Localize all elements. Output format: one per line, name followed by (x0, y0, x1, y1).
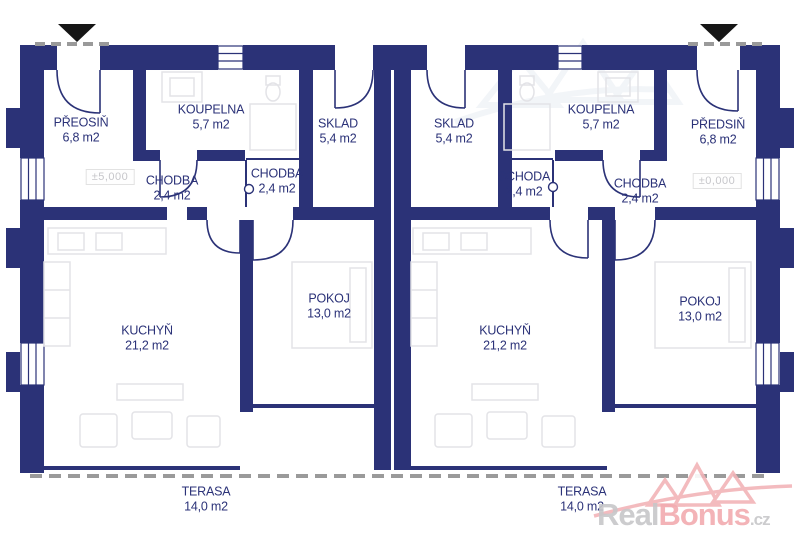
room-label-chodba-right-main: CHODBA2,4 m2 (614, 176, 666, 206)
room-name: POKOJ (308, 291, 349, 305)
elevation-marker-right: ±0,000 (693, 173, 742, 189)
outer-walls (6, 45, 794, 473)
entrance-arrow-icon-left (58, 24, 96, 42)
room-area: 13,0 m2 (678, 309, 722, 323)
room-area: 5,4 m2 (435, 131, 472, 145)
sofa-icon (435, 414, 472, 447)
room-area: 2,4 m2 (621, 191, 658, 205)
room-label-koupelna-left: KOUPELNA5,7 m2 (178, 102, 244, 132)
room-area: 14,0 m2 (184, 499, 228, 513)
room-name: CHODBA (614, 176, 666, 190)
sofa-icon (132, 412, 172, 439)
room-name: SKLAD (434, 116, 474, 130)
room-name: PŘEOSIŇ (54, 115, 109, 129)
room-name: KUCHYŇ (479, 323, 531, 337)
room-name: KOUPELNA (178, 102, 244, 116)
shower-icon (250, 104, 296, 150)
sofa-icon (80, 414, 117, 447)
room-label-terasa-left: TERASA14,0 m2 (182, 484, 231, 514)
room-label-predsin-left: PŘEOSIŇ6,8 m2 (54, 115, 109, 145)
room-area: 5,4 m2 (319, 131, 356, 145)
room-name: KUCHYŇ (121, 323, 173, 337)
floor-plan-drawing (0, 0, 800, 533)
entrance-arrows (58, 24, 738, 42)
room-label-kuchyn-left: KUCHYŇ21,2 m2 (121, 323, 173, 353)
room-area: 2,4 m2 (505, 184, 542, 198)
room-label-koupelna-right: KOUPELNA5,7 m2 (568, 102, 634, 132)
room-name: CHODBA (146, 173, 198, 187)
watermark-real: Real (597, 497, 658, 532)
room-label-chodba-left-small: CHODBA2,4 m2 (251, 166, 303, 196)
room-name: SCHODA (498, 169, 550, 183)
floor-plan: PŘEOSIŇ6,8 m2 KOUPELNA5,7 m2 SKLAD5,4 m2… (0, 0, 800, 533)
room-label-schoda-right: SCHODA2,4 m2 (498, 169, 550, 199)
watermark-cz: .cz (750, 510, 770, 529)
table-icon (472, 384, 538, 400)
room-label-kuchyn-right: KUCHYŇ21,2 m2 (479, 323, 531, 353)
room-label-sklad-right: SKLAD5,4 m2 (434, 116, 474, 146)
room-label-sklad-left: SKLAD5,4 m2 (318, 116, 358, 146)
room-label-chodba-left-main: CHODBA2,4 m2 (146, 173, 198, 203)
room-area: 21,2 m2 (483, 338, 527, 352)
watermark-bonus: Bonus (658, 497, 749, 532)
sofa-icon (487, 412, 527, 439)
sofa-icon (542, 416, 575, 447)
room-name: PŘEDSIŇ (691, 117, 745, 131)
room-name: CHODBA (251, 166, 303, 180)
room-area: 21,2 m2 (125, 338, 169, 352)
room-label-pokoj-right: POKOJ13,0 m2 (678, 294, 722, 324)
room-name: KOUPELNA (568, 102, 634, 116)
entrance-arrow-icon-right (700, 24, 738, 42)
room-name: TERASA (182, 484, 231, 498)
room-area: 13,0 m2 (307, 306, 351, 320)
room-area: 2,4 m2 (258, 181, 295, 195)
room-area: 6,8 m2 (62, 130, 99, 144)
sofa-icon (187, 416, 220, 447)
room-label-predsin-right: PŘEDSIŇ6,8 m2 (691, 117, 745, 147)
washbasin-icon (162, 72, 202, 102)
room-area: 2,4 m2 (153, 188, 190, 202)
table-icon (117, 384, 183, 400)
elevation-marker-left: ±5,000 (86, 169, 135, 185)
room-name: SKLAD (318, 116, 358, 130)
room-area: 6,8 m2 (699, 132, 736, 146)
room-area: 5,7 m2 (192, 117, 229, 131)
room-name: POKOJ (679, 294, 720, 308)
room-area: 5,7 m2 (582, 117, 619, 131)
room-label-pokoj-left: POKOJ13,0 m2 (307, 291, 351, 321)
realbonus-watermark: RealBonus.cz (597, 497, 770, 533)
